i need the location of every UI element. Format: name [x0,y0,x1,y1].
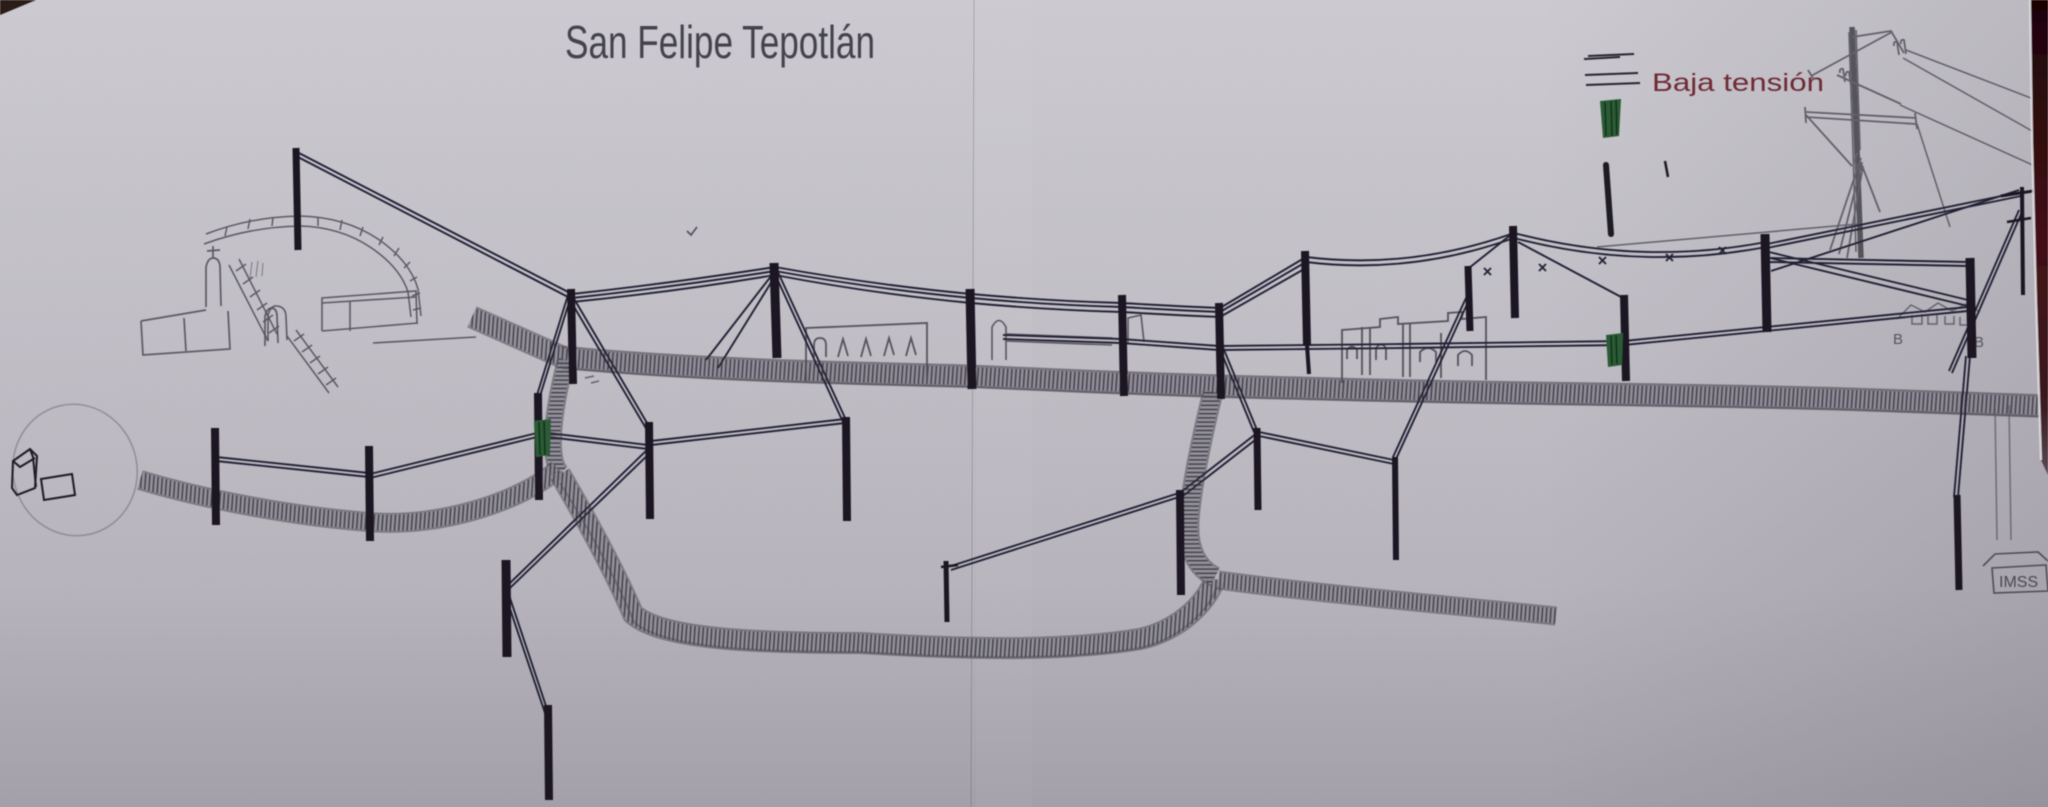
svg-text:Baja tensión: Baja tensión [1652,69,1824,97]
svg-text:IMSS: IMSS [1999,574,2038,591]
svg-text:San Felipe Tepotlán: San Felipe Tepotlán [565,16,875,68]
svg-text:B: B [1893,331,1903,348]
